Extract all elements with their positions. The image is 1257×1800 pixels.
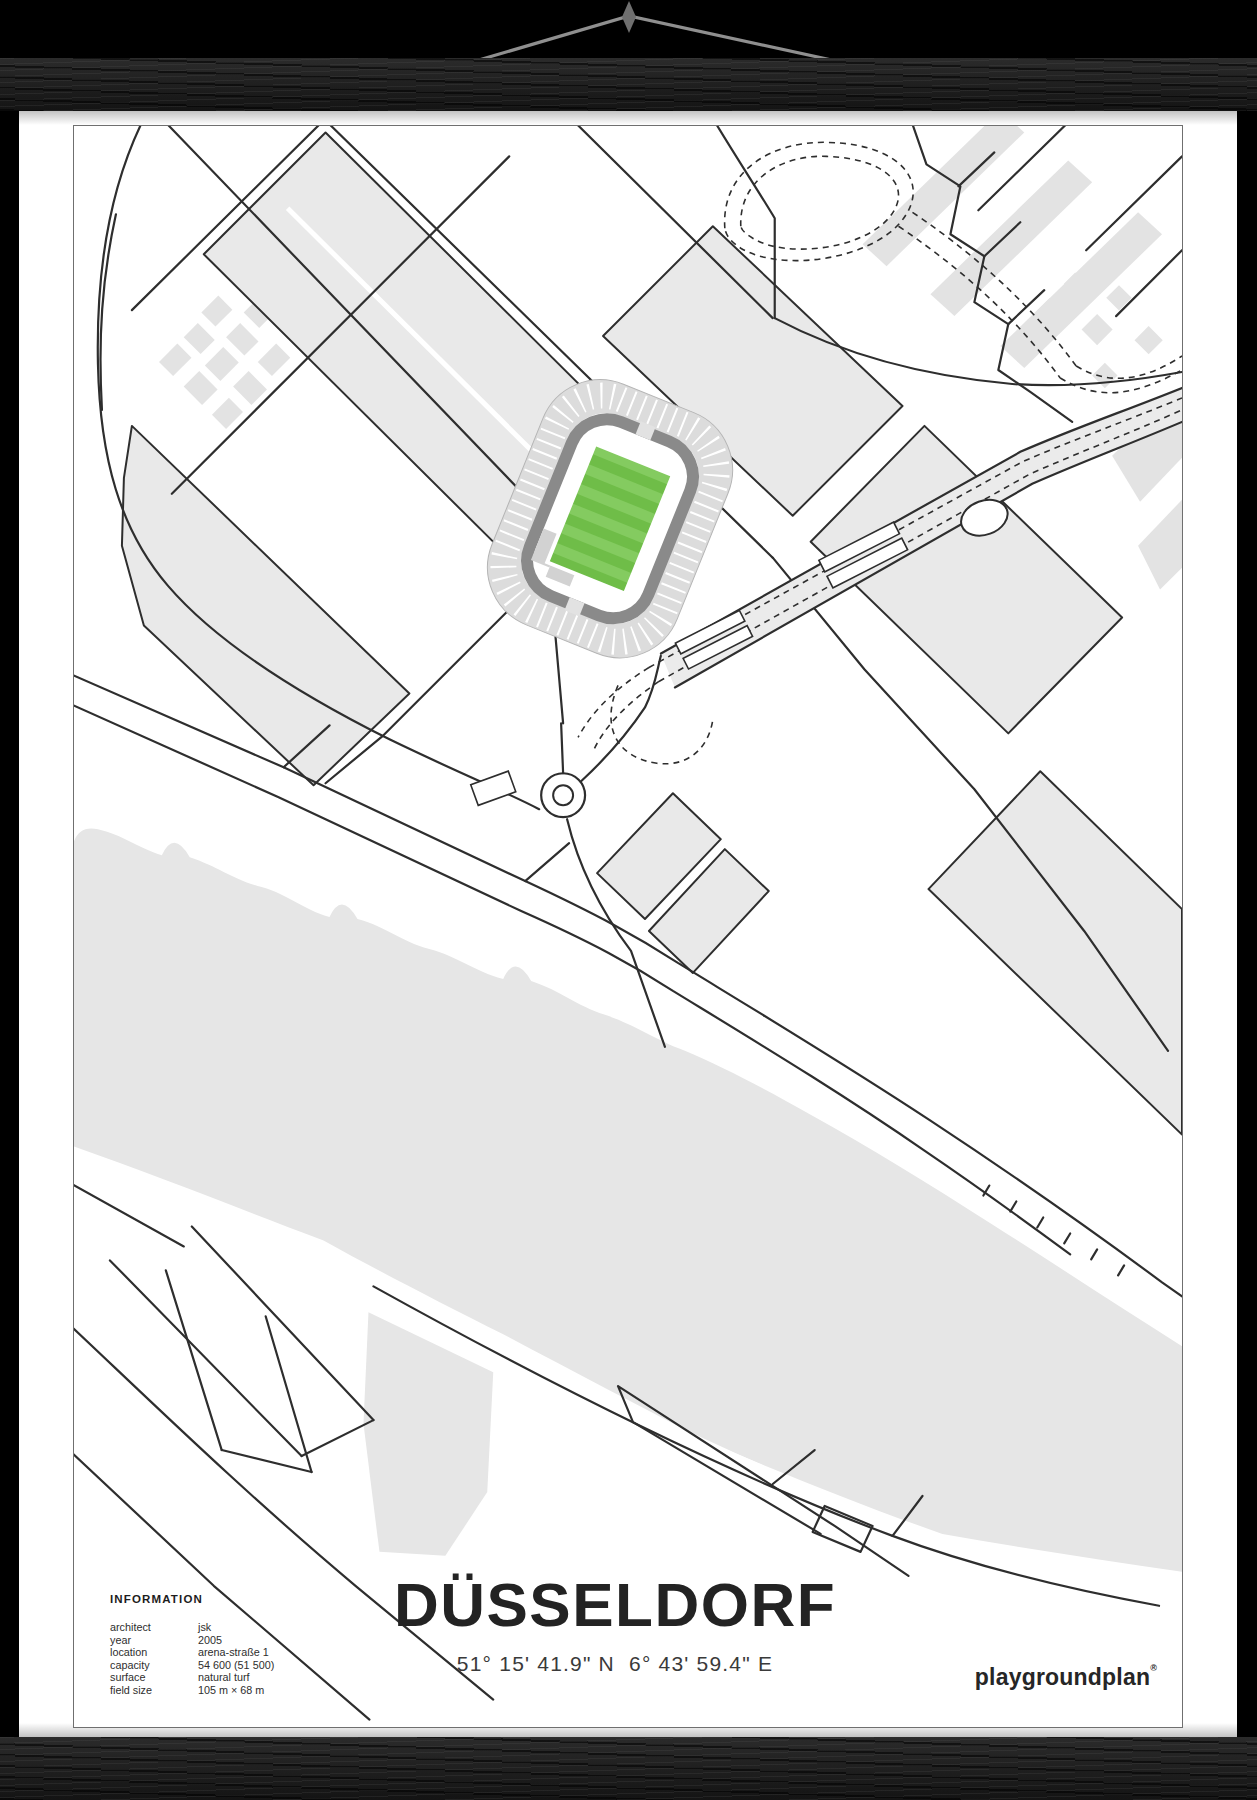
- product-photo-scene: { "poster": { "title": "DÜSSELDORF", "co…: [0, 0, 1257, 1800]
- roundabout: [541, 773, 585, 817]
- registered-mark: ®: [1150, 1663, 1157, 1673]
- top-hanger-rail: [0, 58, 1257, 111]
- title-block: DÜSSELDORF 51° 15' 41.9" N 6° 43' 59.4" …: [63, 1574, 1167, 1676]
- page-title: DÜSSELDORF: [63, 1574, 1167, 1636]
- brand-logo: playgroundplan®: [975, 1663, 1157, 1691]
- exhibition-hall: [928, 771, 1182, 1134]
- dusseldorf-street-map: [74, 126, 1182, 1727]
- map-frame: [73, 125, 1183, 1728]
- top-rail-shadow: [19, 111, 1237, 125]
- cord-hook-icon: [622, 1, 636, 33]
- info-row-field-size: field size 105 m × 68 m: [110, 1684, 274, 1697]
- bottom-hanger-rail: [0, 1737, 1257, 1800]
